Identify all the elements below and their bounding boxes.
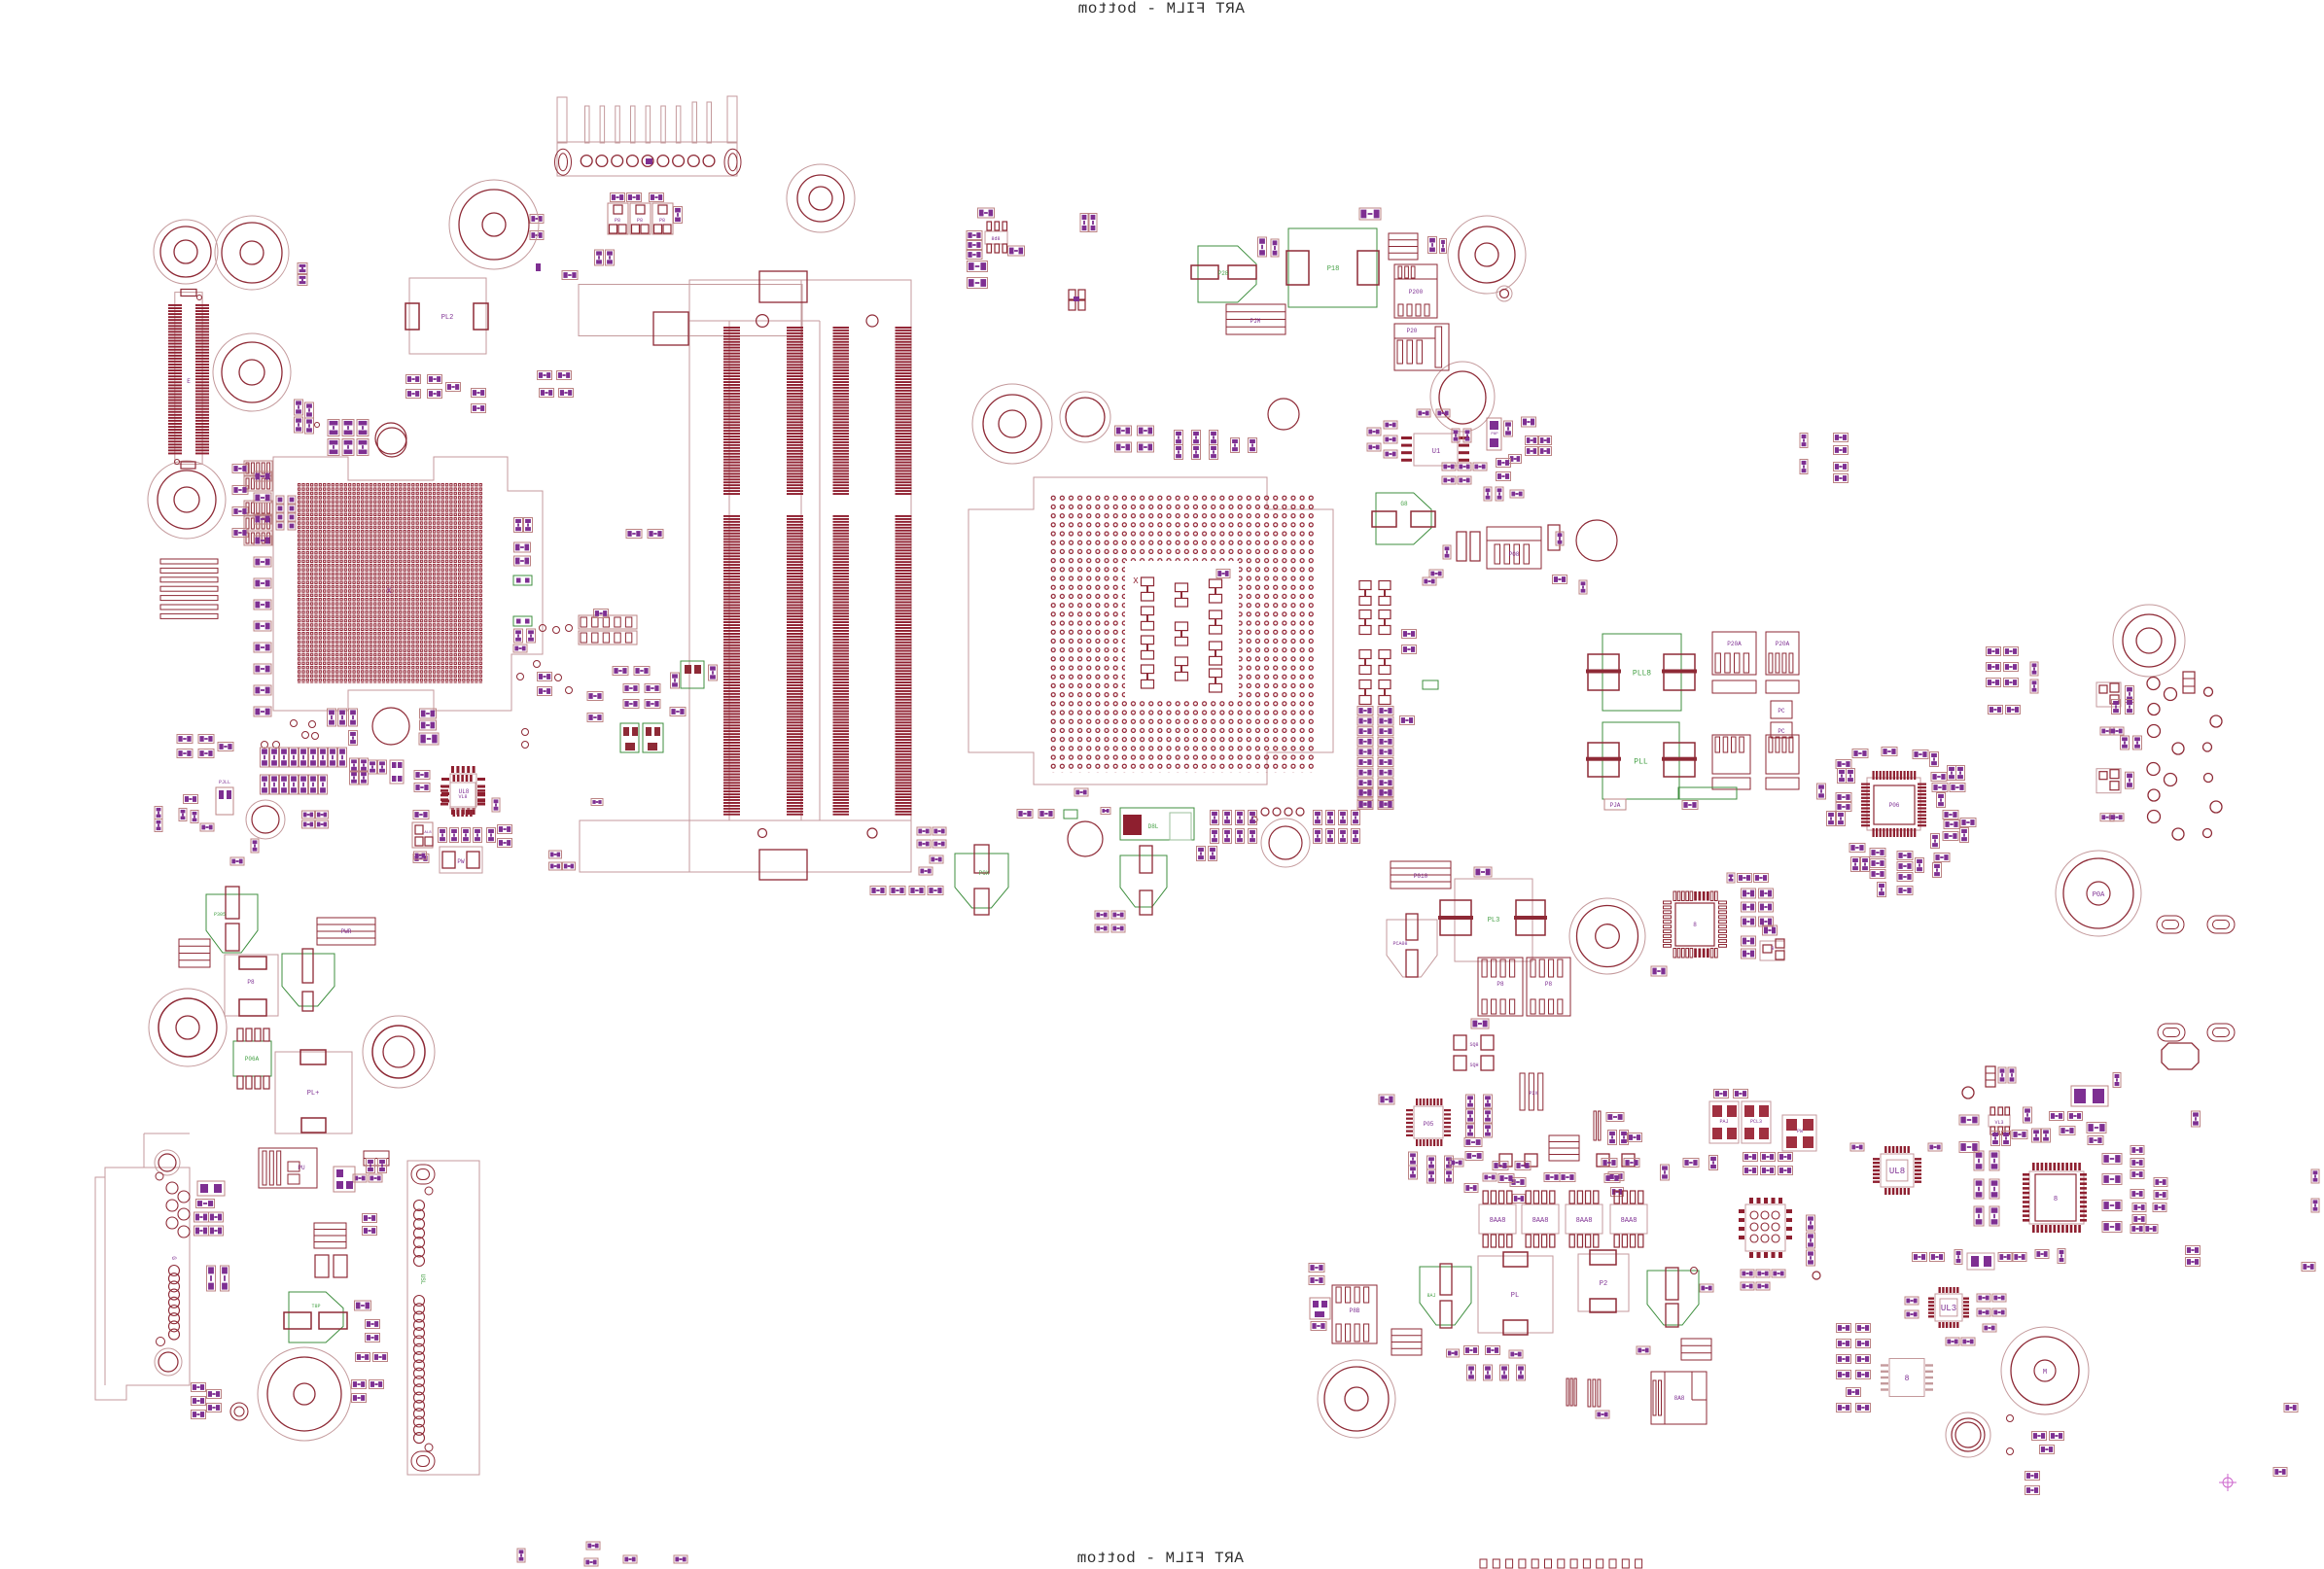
svg-text:P8: P8 — [1497, 981, 1504, 988]
svg-text:P8: P8 — [659, 218, 665, 224]
svg-text:VL3: VL3 — [1994, 1120, 2003, 1126]
svg-text:P8: P8 — [1545, 981, 1553, 988]
svg-text:AL8: AL8 — [424, 831, 432, 835]
svg-text:E: E — [187, 378, 191, 385]
svg-text:8: 8 — [1905, 1375, 1910, 1383]
svg-text:D8L: D8L — [1148, 823, 1159, 830]
svg-text:P200: P200 — [1409, 289, 1424, 296]
svg-text:P8: P8 — [615, 218, 620, 224]
svg-text:P305: P305 — [214, 912, 226, 918]
svg-text:P20A: P20A — [1727, 641, 1742, 647]
svg-text:P0A: P0A — [2093, 891, 2105, 899]
svg-text:P18: P18 — [1327, 265, 1340, 273]
svg-text:PLL: PLL — [1634, 758, 1648, 767]
svg-text:PU: PU — [298, 1165, 305, 1171]
svg-text:P06A: P06A — [245, 1056, 260, 1063]
svg-text:8AJ: 8AJ — [1426, 1293, 1435, 1299]
svg-text:ART FILM - bottom: ART FILM - bottom — [1076, 1550, 1244, 1567]
svg-text:PC: PC — [1778, 728, 1785, 735]
svg-text:P2: P2 — [1600, 1280, 1607, 1288]
svg-text:PC: PC — [1778, 708, 1785, 715]
svg-text:G8: G8 — [1400, 501, 1408, 507]
svg-text:8: 8 — [2054, 1196, 2058, 1203]
svg-text:8AA8: 8AA8 — [1532, 1217, 1549, 1225]
svg-text:ART FILM - bottom: ART FILM - bottom — [1077, 0, 1245, 17]
svg-text:P8: P8 — [637, 218, 643, 224]
svg-text:PL+: PL+ — [307, 1090, 320, 1098]
svg-text:PLL8: PLL8 — [1633, 670, 1651, 679]
svg-text:PCA08: PCA08 — [1392, 941, 1407, 947]
svg-text:POX: POX — [979, 870, 990, 877]
svg-text:M: M — [2043, 1369, 2047, 1377]
svg-text:VL8: VL8 — [458, 794, 467, 800]
svg-text:X: X — [1133, 576, 1139, 586]
svg-text:P8B: P8B — [1350, 1307, 1360, 1314]
svg-text:PCL3: PCL3 — [1750, 1119, 1762, 1125]
svg-text:PL: PL — [1511, 1292, 1519, 1300]
svg-text:PJM: PJM — [1250, 318, 1261, 325]
svg-text:PL3: PL3 — [1488, 917, 1500, 924]
svg-text:U1: U1 — [1432, 448, 1440, 456]
svg-text:USL: USL — [419, 1274, 426, 1285]
svg-text:G: G — [170, 1256, 177, 1260]
svg-text:P8: P8 — [247, 979, 255, 986]
svg-text:P20A: P20A — [1776, 641, 1790, 647]
svg-text:SQH: SQH — [1469, 1063, 1478, 1068]
svg-text:P08: P08 — [1509, 551, 1520, 558]
svg-text:8: 8 — [1693, 922, 1697, 928]
svg-text:UL3: UL3 — [1941, 1304, 1956, 1313]
svg-text:P8P: P8P — [1491, 433, 1498, 436]
svg-text:P2X: P2X — [1529, 1091, 1537, 1097]
svg-text:UL8: UL8 — [1889, 1167, 1905, 1176]
svg-text:P06: P06 — [1889, 802, 1900, 809]
svg-text:PW: PW — [1797, 1129, 1803, 1134]
svg-text:X: X — [387, 587, 392, 596]
svg-text:P05: P05 — [1424, 1121, 1434, 1128]
svg-text:P010: P010 — [1414, 873, 1428, 880]
svg-text:8AA8: 8AA8 — [1576, 1217, 1593, 1225]
svg-text:PAJ: PAJ — [1719, 1119, 1728, 1125]
svg-text:P28: P28 — [1218, 270, 1229, 277]
svg-text:8: 8 — [1771, 946, 1774, 952]
svg-text:SQ8: SQ8 — [1469, 1042, 1478, 1048]
svg-text:PWR: PWR — [341, 928, 352, 935]
svg-text:8d8: 8d8 — [991, 236, 1000, 242]
svg-text:8AA8: 8AA8 — [1621, 1217, 1637, 1225]
svg-text:P20: P20 — [1407, 328, 1418, 334]
svg-text:8A8: 8A8 — [1674, 1395, 1685, 1402]
svg-text:PJLL: PJLL — [219, 780, 230, 785]
svg-text:PJA: PJA — [1610, 802, 1621, 809]
svg-text:PL2: PL2 — [441, 314, 454, 322]
svg-text:T8P: T8P — [311, 1304, 320, 1309]
svg-text:PW: PW — [457, 858, 465, 865]
svg-text:8AA8: 8AA8 — [1490, 1217, 1506, 1225]
